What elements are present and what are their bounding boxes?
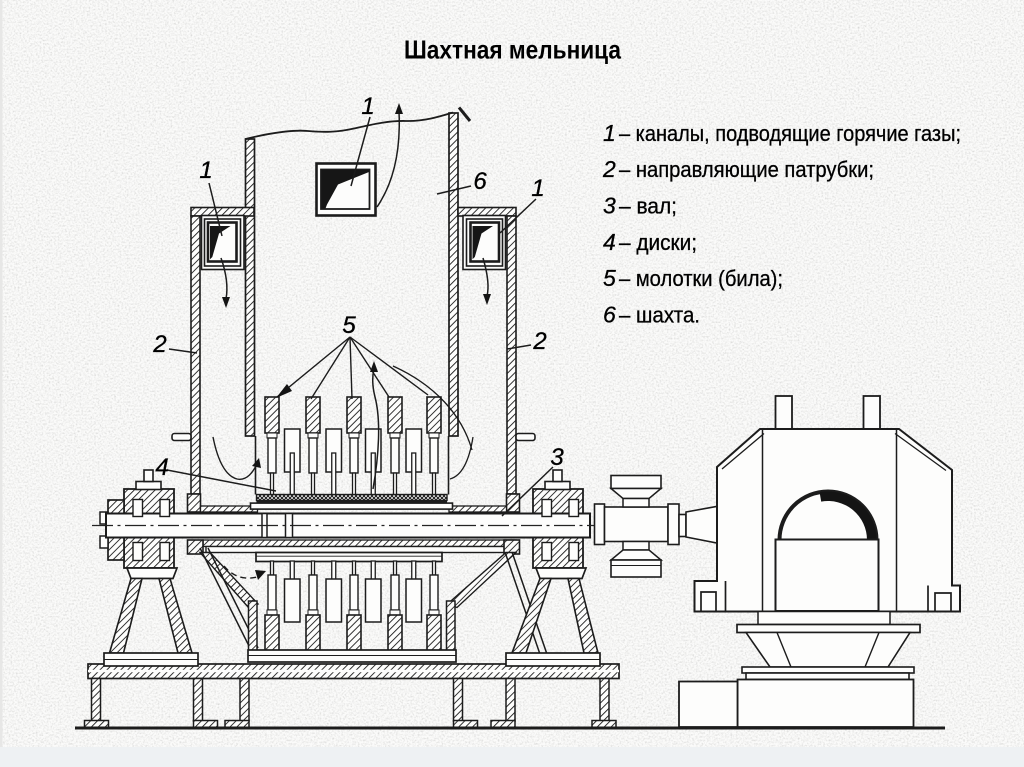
svg-text:1: 1 — [531, 175, 544, 202]
svg-text:3: 3 — [550, 444, 564, 471]
svg-text:1: 1 — [603, 120, 616, 146]
svg-text:2: 2 — [152, 331, 166, 358]
svg-text:4: 4 — [603, 229, 616, 255]
svg-text:6: 6 — [603, 301, 616, 327]
svg-text:6: 6 — [473, 168, 487, 195]
svg-text:2: 2 — [602, 156, 616, 182]
svg-text:1: 1 — [199, 157, 212, 184]
svg-text:5: 5 — [342, 312, 356, 339]
svg-text:– каналы, подводящие горячие г: – каналы, подводящие горячие газы; — [619, 121, 961, 146]
svg-text:Шахтная мельница: Шахтная мельница — [404, 35, 621, 65]
svg-text:– диски;: – диски; — [619, 230, 697, 255]
svg-text:2: 2 — [532, 328, 546, 355]
svg-text:4: 4 — [155, 454, 168, 481]
svg-text:5: 5 — [603, 265, 616, 291]
svg-text:– молотки (била);: – молотки (била); — [619, 266, 783, 291]
svg-text:– направляющие патрубки;: – направляющие патрубки; — [619, 157, 874, 182]
svg-text:– вал;: – вал; — [619, 194, 677, 219]
svg-text:– шахта.: – шахта. — [619, 302, 700, 327]
svg-text:1: 1 — [361, 93, 374, 120]
svg-text:3: 3 — [603, 193, 616, 219]
